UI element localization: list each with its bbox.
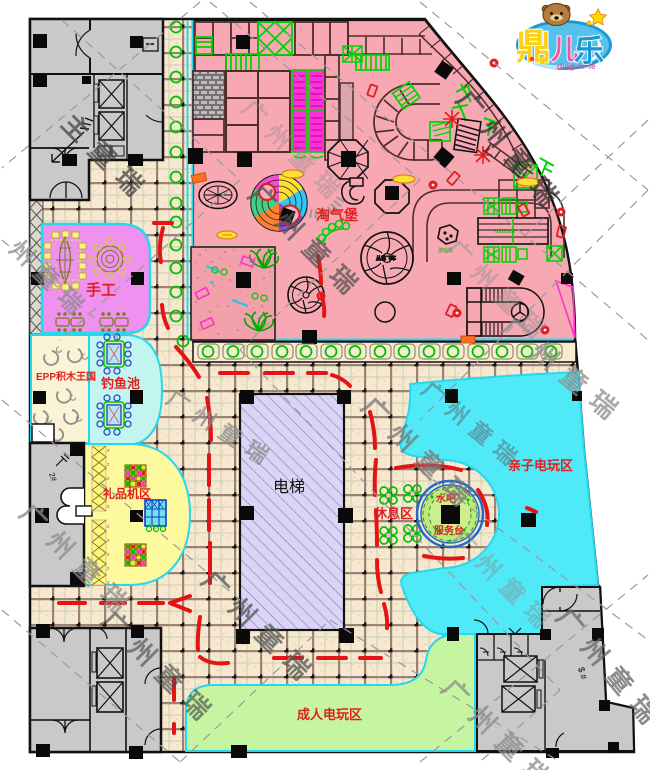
svg-text:休息区: 休息区 <box>373 506 413 521</box>
svg-text:成人电玩区: 成人电玩区 <box>297 707 362 722</box>
svg-text:手工: 手工 <box>86 281 116 299</box>
svg-text:鼎: 鼎 <box>516 28 551 67</box>
svg-text:电梯: 电梯 <box>273 478 305 496</box>
svg-text:丛林飞车: 丛林飞车 <box>376 255 396 262</box>
svg-text:钓鱼池: 钓鱼池 <box>101 376 140 391</box>
svg-text:EPP积木王国: EPP积木王国 <box>36 370 96 383</box>
svg-text:ding-er-le: ding-er-le <box>557 61 596 71</box>
svg-text:00000000: 00000000 <box>495 229 516 234</box>
svg-text:淘气堡: 淘气堡 <box>316 207 358 223</box>
svg-text:礼品机区: 礼品机区 <box>103 486 151 501</box>
